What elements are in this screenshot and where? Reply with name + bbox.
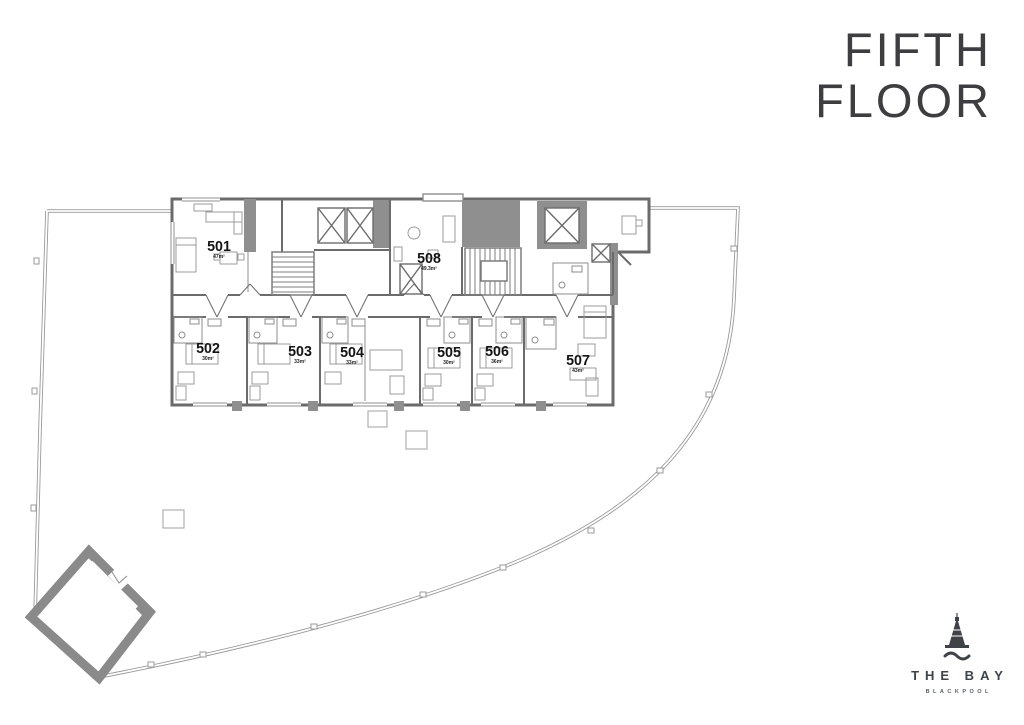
building-block <box>169 194 649 411</box>
plaza-rooflights <box>163 411 427 528</box>
bay-window <box>423 194 463 201</box>
diamond-structure <box>31 550 150 678</box>
brand-logo: THE BAY BLACKPOOL <box>893 612 1021 695</box>
page-title-line2: FLOOR <box>815 75 992 126</box>
brand-name: THE BAY <box>905 668 1009 683</box>
blackpool-tower-icon <box>935 612 979 662</box>
page-title: FIFTH FLOOR <box>815 24 992 126</box>
page-title-line1: FIFTH <box>815 24 992 75</box>
brand-city: BLACKPOOL <box>922 689 992 695</box>
floor-plan-page: FIFTH FLOOR 501 47m² 502 30m² 503 33m² 5… <box>0 0 1024 725</box>
